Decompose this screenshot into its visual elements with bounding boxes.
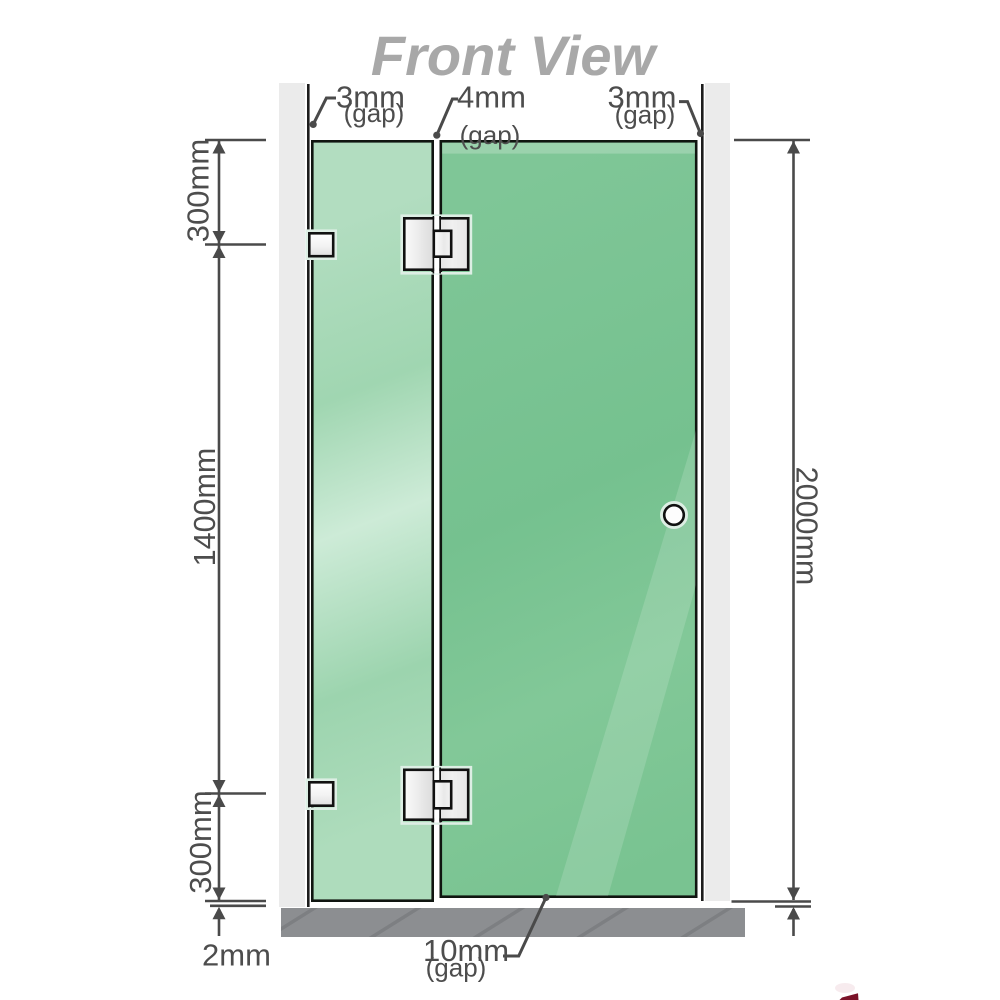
svg-text:300mm: 300mm	[183, 790, 218, 893]
svg-text:2000mm: 2000mm	[790, 467, 824, 586]
svg-text:4mm: 4mm	[457, 80, 526, 115]
svg-text:1400mm: 1400mm	[188, 448, 222, 567]
svg-text:(gap): (gap)	[344, 98, 405, 128]
svg-text:2mm: 2mm	[202, 938, 271, 973]
svg-text:(gap): (gap)	[426, 953, 487, 983]
svg-text:(gap): (gap)	[615, 100, 676, 130]
svg-text:(gap): (gap)	[460, 120, 521, 150]
svg-text:Front View: Front View	[371, 24, 659, 87]
svg-text:300mm: 300mm	[181, 139, 216, 242]
